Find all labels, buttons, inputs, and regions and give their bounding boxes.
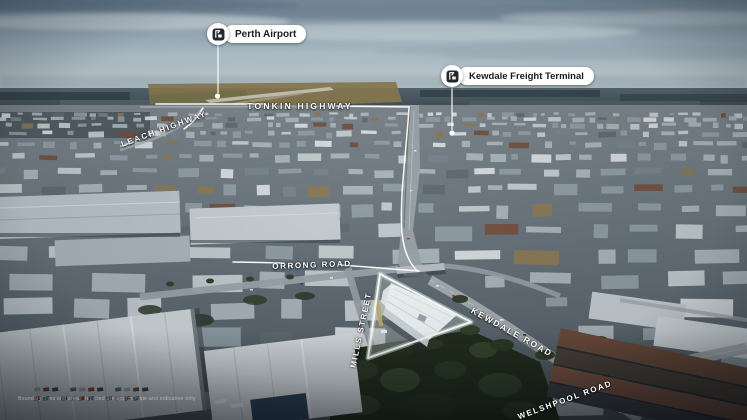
aerial-photo [0,0,747,420]
pin-label: Perth Airport [235,29,296,40]
pin-kewdale-freight-terminal: Kewdale Freight Terminal [441,65,594,87]
pin-label: Kewdale Freight Terminal [469,71,584,82]
freight-building-icon [441,65,463,87]
road-label-tonkin-highway: TONKIN HIGHWAY [247,101,352,111]
aerial-locator-map: Perth Airport Kewdale Freight Terminal T… [0,0,747,420]
pin-perth-airport: Perth Airport [207,23,306,45]
freight-building-icon [207,23,229,45]
image-disclaimer: Boundary lines and areas depicted are ap… [18,396,196,402]
